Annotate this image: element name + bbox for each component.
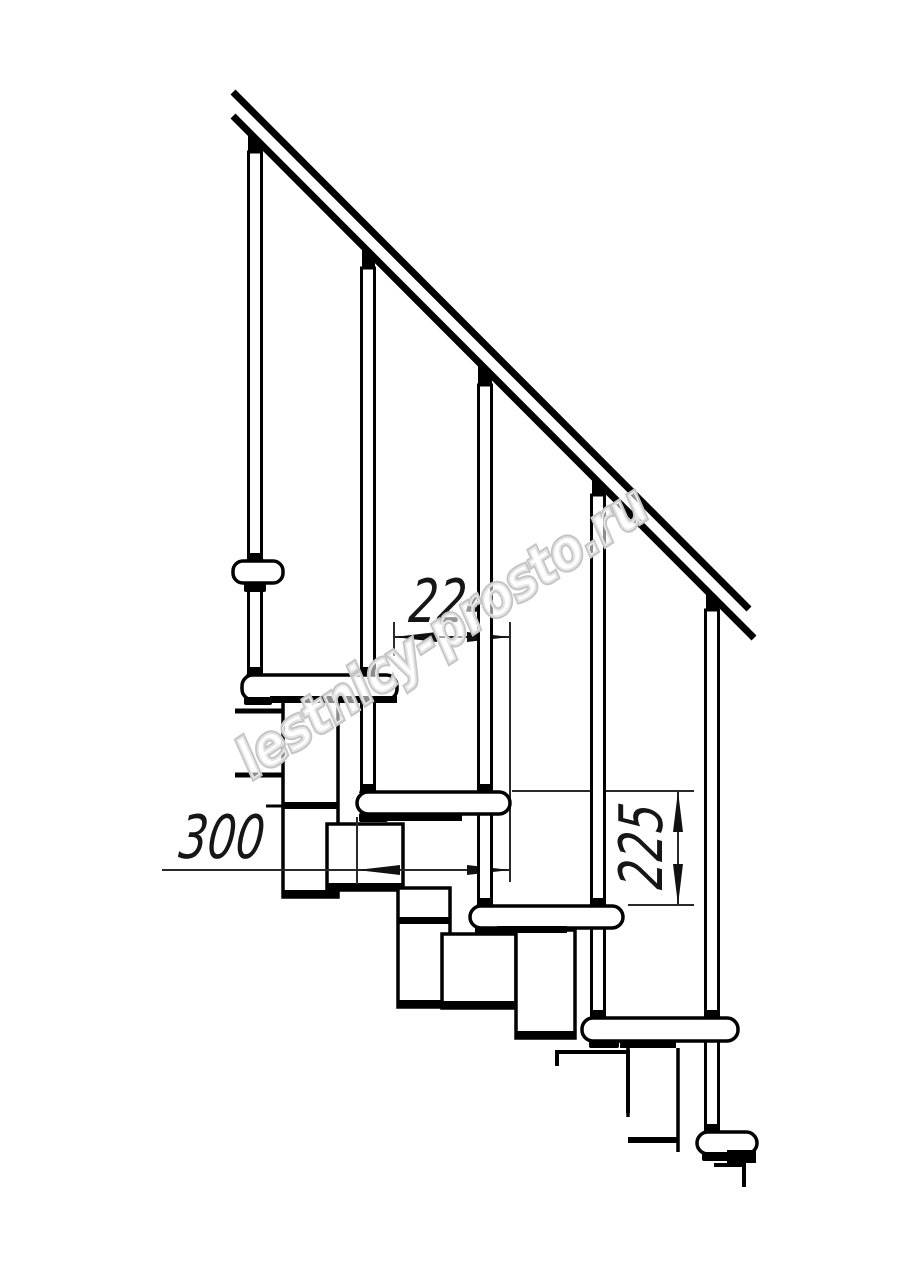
riser-module-4 [442, 934, 516, 1008]
baluster-1-sleeve [246, 553, 264, 561]
riser-module-5 [516, 930, 575, 1038]
staircase-drawing: 224 300 225 [0, 0, 914, 1280]
baluster-3 [479, 385, 492, 907]
baluster-4 [592, 495, 605, 1019]
riser-module-6 [557, 1052, 628, 1113]
dim-text-300: 300 [176, 804, 268, 873]
riser-module-2 [327, 824, 403, 890]
baluster-5 [706, 610, 719, 1133]
baluster-1 [249, 152, 262, 675]
technical-drawing-page: 224 300 225 [0, 0, 914, 1280]
handrail [233, 92, 754, 638]
tread-5 [697, 1132, 757, 1187]
landing-rail-end [233, 553, 283, 592]
riser-module-7 [628, 1048, 678, 1152]
dim-text-225: 225 [608, 800, 677, 892]
cutoff-contour [714, 1165, 744, 1187]
